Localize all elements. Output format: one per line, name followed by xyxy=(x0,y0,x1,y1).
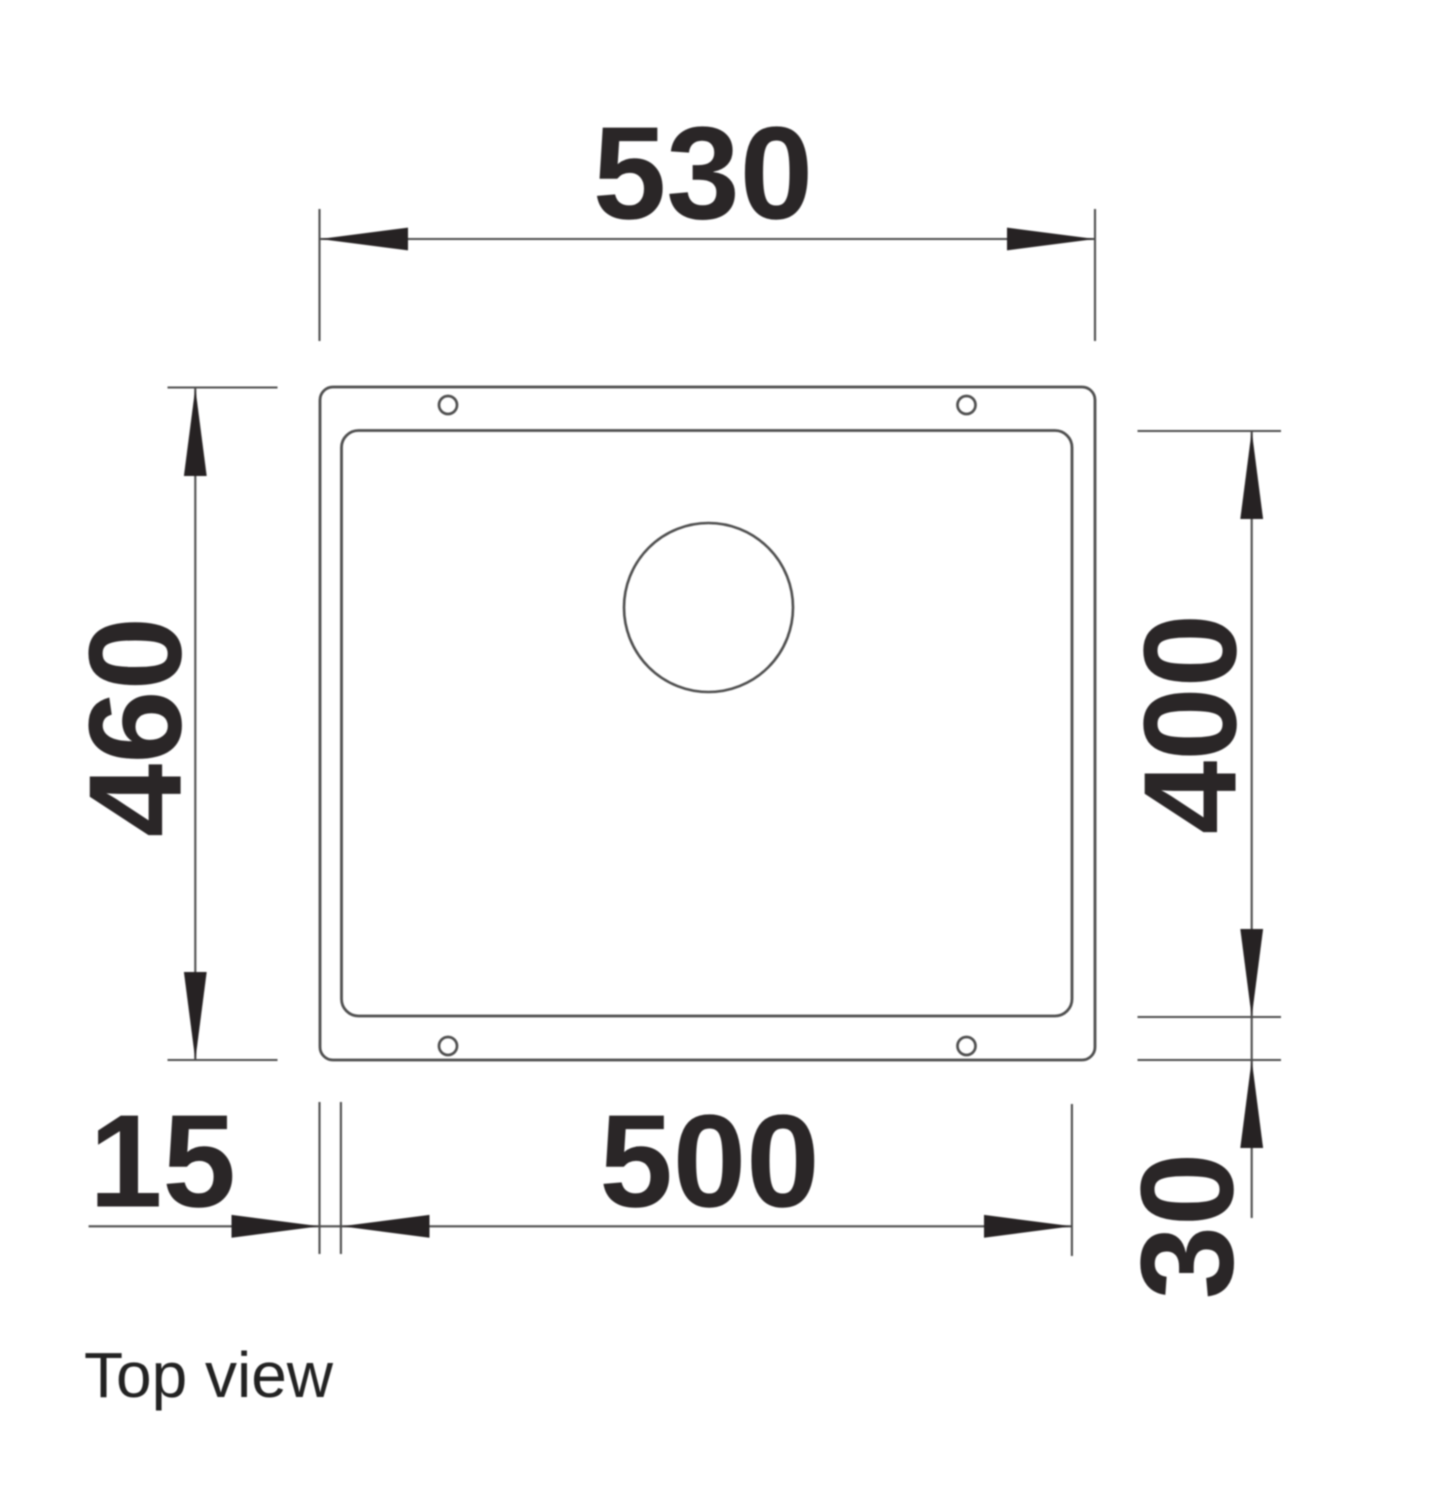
svg-text:500: 500 xyxy=(599,1088,819,1235)
svg-text:400: 400 xyxy=(1117,614,1264,834)
svg-text:30: 30 xyxy=(1114,1153,1261,1300)
svg-text:15: 15 xyxy=(89,1088,236,1235)
svg-text:530: 530 xyxy=(593,100,813,247)
svg-text:460: 460 xyxy=(62,617,209,837)
svg-text:Top view: Top view xyxy=(84,1339,334,1411)
